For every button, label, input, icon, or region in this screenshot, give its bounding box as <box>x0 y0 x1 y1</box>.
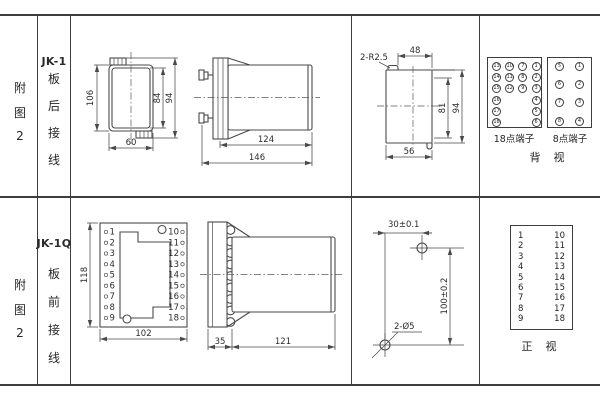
dim-94: 94 <box>165 93 175 104</box>
terminal-number: 3 <box>575 98 584 107</box>
svg-text:9: 9 <box>110 314 115 324</box>
dim-81: 81 <box>438 103 448 114</box>
wiring-char: 板 <box>48 265 60 282</box>
terminal-number: 1 <box>532 62 541 71</box>
svg-text:4: 4 <box>110 260 115 270</box>
dim-146: 146 <box>249 153 265 163</box>
front-view-caption: 正 视 <box>495 338 585 354</box>
figure-canvas: 附 图 2 JK-1 板 后 接 线 106 84 94 60 <box>0 0 600 400</box>
terminal-8pt-box: 5 1 6 2 7 3 8 4 <box>547 57 592 128</box>
figure-label-char: 2 <box>16 129 24 143</box>
svg-text:10: 10 <box>168 228 179 238</box>
terminal-number: 5 <box>555 62 564 71</box>
dim-102: 102 <box>135 329 151 339</box>
dim-94-cutout: 94 <box>452 103 462 114</box>
wiring-char: 前 <box>48 293 60 310</box>
terminal-number: 1 <box>575 62 584 71</box>
figure-label-char: 图 <box>14 104 26 121</box>
terminal-number: 6 <box>555 80 564 89</box>
jk1q-front-view-drawing: 1 2 3 4 5 6 7 8 9 10 11 12 13 14 15 16 1… <box>80 213 200 353</box>
dim-100: 100±0.2 <box>440 278 450 315</box>
drilling-plan-drawing: 30±0.1 100±0.2 2-Ø5 <box>362 218 472 358</box>
figure-label-row2: 附 图 2 <box>6 276 34 340</box>
terminal-number: 4 <box>575 117 584 126</box>
terminal-number: 15 <box>492 84 501 93</box>
terminal-table-row: 211 <box>518 241 565 251</box>
terminal-number: 14 <box>492 73 501 82</box>
figure-label-char: 图 <box>14 301 26 318</box>
terminal-number: 7 <box>555 98 564 107</box>
wiring-char: 线 <box>48 151 60 168</box>
svg-text:6: 6 <box>110 282 115 292</box>
wiring-label-row2: 板 前 接 线 <box>37 265 71 366</box>
terminal-table-row: 312 <box>518 252 565 262</box>
terminal-number: 4 <box>532 96 541 105</box>
table-border-top <box>0 14 600 16</box>
cutout-radius-label: 2-R2.5 <box>360 53 388 63</box>
terminal-table-row: 110 <box>518 231 565 241</box>
terminal-number: 17 <box>492 107 501 116</box>
figure-label-char: 2 <box>16 326 24 340</box>
svg-text:7: 7 <box>110 292 115 302</box>
svg-text:16: 16 <box>168 292 179 302</box>
terminal-8pt-grid: 5 1 6 2 7 3 8 4 <box>548 58 591 126</box>
column-divider-3 <box>351 14 352 386</box>
hole-diameter-label: 2-Ø5 <box>394 321 415 332</box>
dim-121: 121 <box>275 337 291 347</box>
terminal-number: 10 <box>505 62 514 71</box>
dim-118: 118 <box>80 267 90 283</box>
terminal-number: 18 <box>492 118 501 127</box>
terminal-table: 110 211 312 413 514 615 716 817 918 <box>510 225 573 330</box>
wiring-char: 板 <box>48 70 60 87</box>
terminal-number: 8 <box>555 117 564 126</box>
terminal-number: 11 <box>505 73 514 82</box>
jk1q-side-view-drawing: 35 121 <box>198 213 348 358</box>
wiring-char: 线 <box>48 349 60 366</box>
dim-30: 30±0.1 <box>388 220 419 230</box>
dim-48: 48 <box>410 46 421 56</box>
wiring-char: 后 <box>48 97 60 114</box>
model-label-jk1: JK-1 <box>37 55 71 68</box>
figure-label-char: 附 <box>14 276 26 293</box>
terminal-number: 16 <box>492 96 501 105</box>
svg-text:8: 8 <box>110 303 115 313</box>
terminal-number: 12 <box>505 84 514 93</box>
terminal-table-row: 615 <box>518 283 565 293</box>
panel-cutout-drawing: 2-R2.5 48 81 94 56 <box>358 42 480 172</box>
table-border-bottom <box>0 384 600 386</box>
wiring-label-row1: 板 后 接 线 <box>37 70 71 168</box>
terminal-table-row: 413 <box>518 262 565 272</box>
dim-124: 124 <box>258 135 274 145</box>
terminal-number: 7 <box>518 62 527 71</box>
svg-text:17: 17 <box>168 303 179 313</box>
svg-text:5: 5 <box>110 271 115 281</box>
svg-text:18: 18 <box>168 314 179 324</box>
terminal-number: 2 <box>532 73 541 82</box>
svg-text:2: 2 <box>110 239 115 249</box>
jk1-side-view-drawing: 124 146 <box>193 45 321 170</box>
jk1-rear-view-drawing: 106 84 94 60 <box>85 45 185 160</box>
svg-text:11: 11 <box>168 239 179 249</box>
svg-text:14: 14 <box>168 271 179 281</box>
dim-84: 84 <box>153 93 163 104</box>
terminal-number: 2 <box>575 80 584 89</box>
rear-view-caption: 背 视 <box>503 149 593 165</box>
dim-56: 56 <box>404 147 415 157</box>
svg-text:3: 3 <box>110 249 115 259</box>
dim-106: 106 <box>86 90 96 106</box>
terminal-number: 13 <box>492 62 501 71</box>
svg-text:12: 12 <box>168 249 179 259</box>
table-divider-middle <box>0 196 600 198</box>
svg-text:15: 15 <box>168 282 179 292</box>
terminal-table-row: 514 <box>518 273 565 283</box>
terminal-number: 9 <box>518 84 527 93</box>
wiring-char: 接 <box>48 124 60 141</box>
terminal-8pt-label: 8点端子 <box>544 131 596 145</box>
terminal-number: 3 <box>532 84 541 93</box>
terminal-number: 6 <box>532 118 541 127</box>
terminal-18pt-box: 13 10 7 1 14 11 8 2 15 12 9 3 16 4 17 5 … <box>487 57 542 128</box>
figure-label-row1: 附 图 2 <box>6 79 34 143</box>
terminal-number: 8 <box>518 73 527 82</box>
terminal-table-row: 716 <box>518 293 565 303</box>
terminal-18pt-label: 18点端子 <box>478 131 550 145</box>
terminal-number: 5 <box>532 107 541 116</box>
dim-60: 60 <box>126 138 137 148</box>
terminal-18pt-grid: 13 10 7 1 14 11 8 2 15 12 9 3 16 4 17 5 … <box>488 58 541 127</box>
model-label-jk1q: JK-1Q <box>35 237 73 250</box>
terminal-table-row: 817 <box>518 304 565 314</box>
figure-label-char: 附 <box>14 79 26 96</box>
dim-35: 35 <box>215 337 226 347</box>
wiring-char: 接 <box>48 321 60 338</box>
svg-text:13: 13 <box>168 260 179 270</box>
svg-text:1: 1 <box>110 228 115 238</box>
terminal-table-row: 918 <box>518 314 565 324</box>
